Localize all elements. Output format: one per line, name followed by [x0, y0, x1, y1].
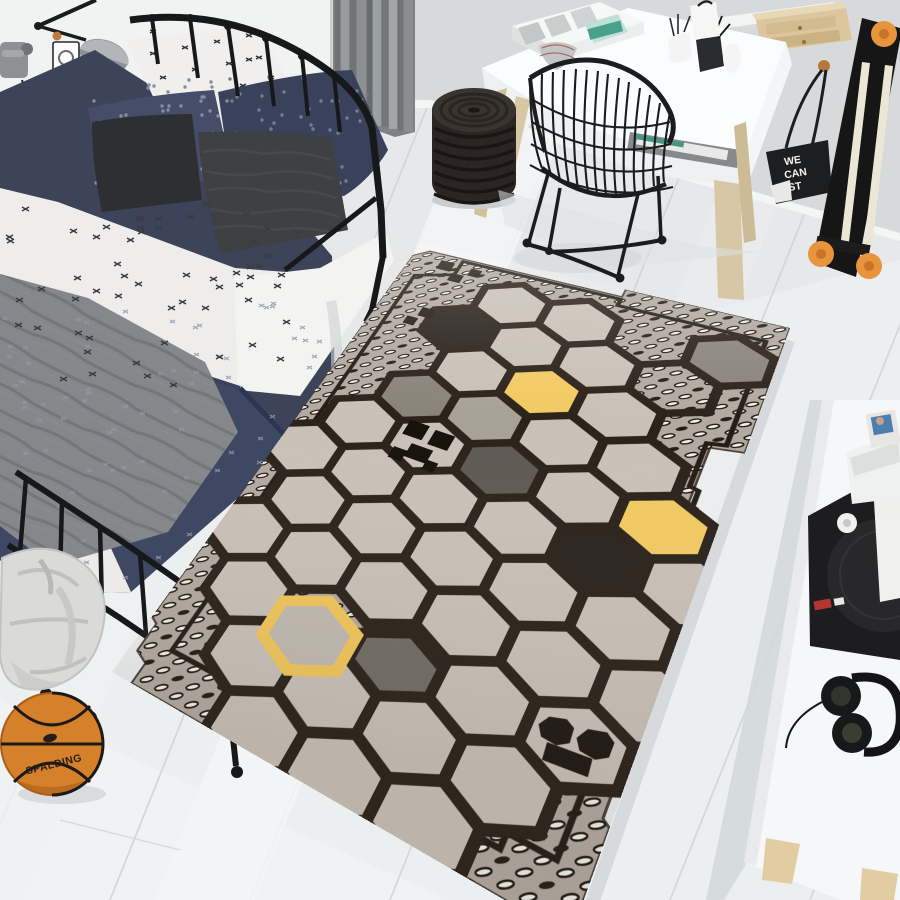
svg-text:ST: ST [787, 180, 803, 194]
